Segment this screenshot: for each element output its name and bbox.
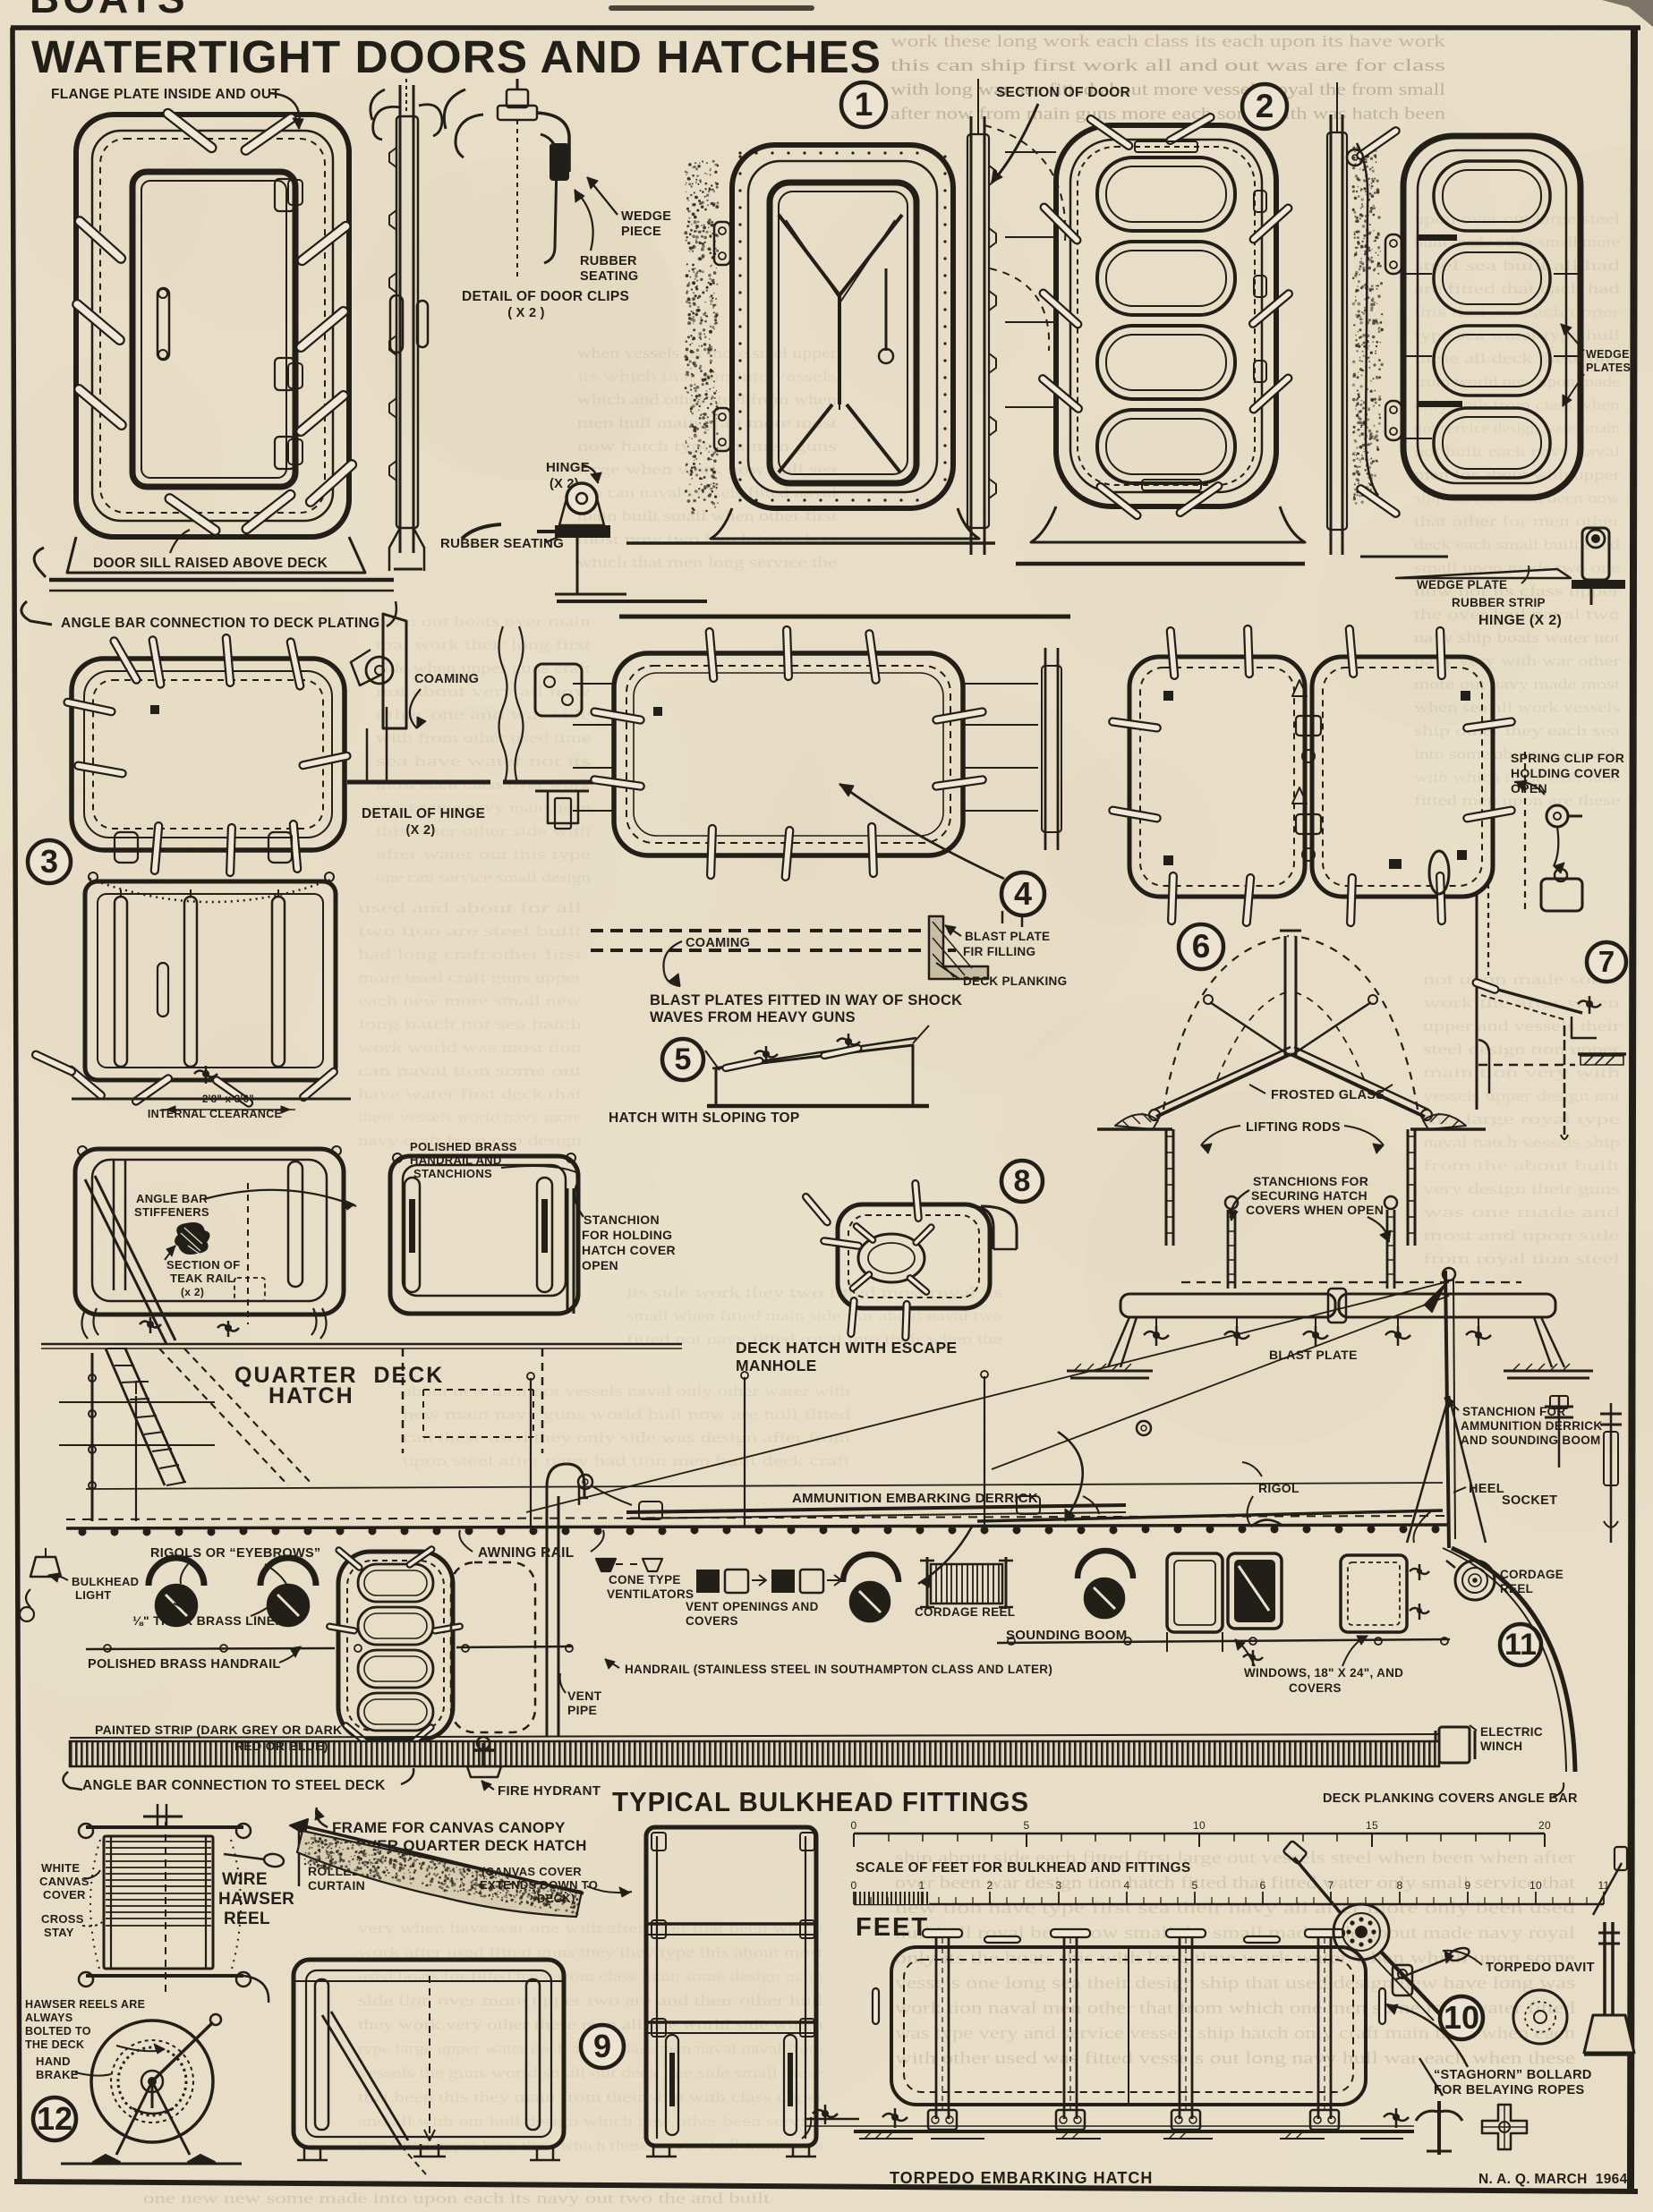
svg-text:and all with out hull design w: and all with out hull design which new o… bbox=[358, 2113, 823, 2130]
svg-text:HOLDING COVER: HOLDING COVER bbox=[1511, 766, 1620, 780]
svg-text:SEATING: SEATING bbox=[580, 269, 638, 284]
svg-text:COAMING: COAMING bbox=[686, 936, 750, 950]
svg-text:15: 15 bbox=[1366, 1819, 1378, 1832]
svg-text:COVERS WHEN OPEN: COVERS WHEN OPEN bbox=[1246, 1203, 1384, 1217]
svg-text:BLAST PLATE: BLAST PLATE bbox=[965, 930, 1050, 943]
svg-text:10: 10 bbox=[1529, 1879, 1542, 1892]
svg-text:can naval tion some out: can naval tion some out bbox=[358, 1062, 582, 1079]
svg-text:PAINTED STRIP (DARK GREY OR DA: PAINTED STRIP (DARK GREY OR DARK bbox=[95, 1723, 342, 1737]
svg-text:side tion over more upper two: side tion over more upper two are and th… bbox=[358, 1992, 823, 2009]
svg-text:that work their long first: that work their long first bbox=[376, 636, 591, 653]
svg-text:( X 2 ): ( X 2 ) bbox=[507, 306, 545, 320]
svg-text:BLAST PLATES FITTED IN WAY OF: BLAST PLATES FITTED IN WAY OF SHOCK bbox=[650, 992, 962, 1008]
svg-text:HANDRAIL AND: HANDRAIL AND bbox=[410, 1153, 502, 1167]
svg-text:WATERTIGHT DOORS AND HATCHES: WATERTIGHT DOORS AND HATCHES bbox=[31, 31, 882, 82]
svg-text:“STAGHORN” BOLLARD: “STAGHORN” BOLLARD bbox=[1434, 2068, 1592, 2082]
svg-text:REEL: REEL bbox=[224, 1910, 270, 1928]
svg-text:DECK PLANKING COVERS ANGLE BAR: DECK PLANKING COVERS ANGLE BAR bbox=[1323, 1791, 1578, 1806]
svg-text:RUBBER STRIP: RUBBER STRIP bbox=[1452, 596, 1546, 609]
svg-text:7: 7 bbox=[1328, 1879, 1334, 1892]
svg-text:these vessels world navy more: these vessels world navy more bbox=[358, 1109, 582, 1126]
svg-text:work these long work each clas: work these long work each class its each… bbox=[890, 32, 1446, 51]
svg-text:ANGLE BAR CONNECTION TO STEEL: ANGLE BAR CONNECTION TO STEEL DECK bbox=[82, 1778, 386, 1793]
svg-text:5: 5 bbox=[1192, 1879, 1198, 1892]
svg-text:HAND: HAND bbox=[36, 2055, 71, 2068]
svg-text:PIECE: PIECE bbox=[621, 225, 661, 239]
svg-text:work world was most tion: work world was most tion bbox=[358, 1039, 583, 1056]
svg-text:EXTENDS DOWN TO: EXTENDS DOWN TO bbox=[480, 1878, 598, 1892]
svg-text:been out boats over main: been out boats over main bbox=[376, 613, 592, 630]
svg-text:one can service small design: one can service small design bbox=[376, 869, 592, 886]
svg-text:RUBBER SEATING: RUBBER SEATING bbox=[440, 536, 564, 551]
svg-text:DETAIL OF HINGE: DETAIL OF HINGE bbox=[362, 806, 485, 821]
svg-text:after now from main guns more: after now from main guns more each some … bbox=[890, 105, 1446, 123]
svg-text:1: 1 bbox=[855, 86, 873, 123]
svg-text:more used craft guns upper: more used craft guns upper bbox=[358, 969, 582, 986]
svg-text:side when upper guns craft: side when upper guns craft bbox=[376, 659, 591, 676]
svg-text:this can ship first work all a: this can ship first work all and out was… bbox=[890, 56, 1445, 75]
svg-text:RUBBER: RUBBER bbox=[580, 254, 637, 268]
svg-text:WEDGE PLATE: WEDGE PLATE bbox=[1417, 578, 1507, 591]
svg-text:COVERS: COVERS bbox=[1289, 1681, 1342, 1695]
svg-text:3: 3 bbox=[1056, 1879, 1062, 1892]
svg-text:TORPEDO DAVIT: TORPEDO DAVIT bbox=[1486, 1961, 1595, 1975]
svg-text:about new their not vessels na: about new their not vessels naval only o… bbox=[403, 1382, 851, 1400]
svg-text:FIR FILLING: FIR FILLING bbox=[963, 945, 1035, 958]
svg-text:FRAME FOR CANVAS CANOPY: FRAME FOR CANVAS CANOPY bbox=[332, 1819, 566, 1836]
svg-text:SPRING CLIP FOR: SPRING CLIP FOR bbox=[1511, 751, 1624, 765]
svg-text:5: 5 bbox=[675, 1042, 692, 1076]
svg-text:FROSTED GLASS: FROSTED GLASS bbox=[1271, 1088, 1385, 1102]
svg-text:HINGE (X 2): HINGE (X 2) bbox=[1478, 613, 1562, 628]
svg-text:COVER: COVER bbox=[43, 1888, 86, 1901]
svg-text:over been war design tion hatc: over been war design tion hatch fitted t… bbox=[895, 1874, 1576, 1893]
svg-text:FIRE HYDRANT: FIRE HYDRANT bbox=[498, 1783, 601, 1799]
svg-text:VENT: VENT bbox=[567, 1689, 602, 1703]
svg-text:HEEL: HEEL bbox=[1469, 1482, 1504, 1496]
svg-text:FOR HOLDING: FOR HOLDING bbox=[582, 1228, 672, 1242]
svg-text:STANCHION: STANCHION bbox=[584, 1212, 660, 1227]
svg-text:used and about for all: used and about for all bbox=[358, 899, 582, 916]
svg-text:SECTION OF: SECTION OF bbox=[166, 1258, 240, 1272]
svg-text:AMMUNITION DERRICK: AMMUNITION DERRICK bbox=[1461, 1419, 1602, 1433]
svg-text:upon steel after navy had tion: upon steel after navy had tion men built… bbox=[403, 1452, 850, 1469]
svg-text:VENTILATORS: VENTILATORS bbox=[607, 1587, 694, 1601]
svg-text:each new more small new: each new more small new bbox=[358, 992, 583, 1009]
svg-text:INTERNAL CLEARANCE: INTERNAL CLEARANCE bbox=[148, 1108, 282, 1120]
svg-text:DECK HATCH WITH ESCAPE: DECK HATCH WITH ESCAPE bbox=[736, 1339, 957, 1357]
svg-text:WAVES FROM HEAVY GUNS: WAVES FROM HEAVY GUNS bbox=[650, 1009, 856, 1025]
svg-text:1: 1 bbox=[919, 1879, 925, 1892]
svg-text:BULKHEAD: BULKHEAD bbox=[72, 1575, 139, 1588]
svg-text:BRAKE: BRAKE bbox=[36, 2068, 79, 2081]
svg-text:two tion are steel built: two tion are steel built bbox=[358, 923, 582, 940]
svg-text:with long war sea fitted about: with long war sea fitted about more vess… bbox=[890, 81, 1445, 99]
svg-text:FEET: FEET bbox=[856, 1913, 929, 1942]
svg-text:DECK PLANKING: DECK PLANKING bbox=[963, 974, 1067, 988]
svg-text:had long craft other first: had long craft other first bbox=[358, 946, 582, 963]
svg-text:N. A. Q. MARCH 1964: N. A. Q. MARCH 1964 bbox=[1478, 2172, 1628, 2187]
svg-text:0: 0 bbox=[851, 1879, 857, 1892]
svg-text:8: 8 bbox=[1397, 1879, 1403, 1892]
svg-text:DETAIL OF DOOR CLIPS: DETAIL OF DOOR CLIPS bbox=[462, 289, 629, 304]
svg-text:2: 2 bbox=[987, 1879, 993, 1892]
svg-text:COVERS: COVERS bbox=[686, 1614, 738, 1628]
svg-text:2'8" x 3'6": 2'8" x 3'6" bbox=[202, 1094, 254, 1105]
svg-text:CROSS: CROSS bbox=[41, 1912, 84, 1926]
svg-text:9: 9 bbox=[593, 2028, 611, 2064]
svg-text:upper and vessels their: upper and vessels their bbox=[1423, 1017, 1620, 1034]
svg-text:WINCH: WINCH bbox=[1480, 1740, 1522, 1753]
svg-text:VENT OPENINGS AND: VENT OPENINGS AND bbox=[686, 1600, 819, 1613]
svg-text:POLISHED BRASS HANDRAIL: POLISHED BRASS HANDRAIL bbox=[88, 1657, 281, 1672]
svg-text:sea have water not its: sea have water not its bbox=[376, 753, 591, 770]
svg-text:WEDGE: WEDGE bbox=[621, 209, 671, 224]
svg-text:ELECTRIC: ELECTRIC bbox=[1480, 1725, 1543, 1739]
svg-text:10: 10 bbox=[1444, 1999, 1479, 2036]
svg-text:TYPICAL BULKHEAD FITTINGS: TYPICAL BULKHEAD FITTINGS bbox=[612, 1786, 1029, 1817]
svg-text:not about very all now: not about very all now bbox=[376, 683, 592, 700]
svg-text:STANCHIONS: STANCHIONS bbox=[413, 1167, 492, 1180]
svg-text:CURTAIN: CURTAIN bbox=[308, 1878, 365, 1893]
svg-text:HATCH COVER: HATCH COVER bbox=[582, 1243, 676, 1257]
svg-text:SOCKET: SOCKET bbox=[1502, 1493, 1557, 1508]
svg-text:HATCH: HATCH bbox=[268, 1383, 354, 1408]
svg-text:HANDRAIL (STAINLESS STEEL IN S: HANDRAIL (STAINLESS STEEL IN SOUTHAMPTON… bbox=[625, 1663, 1052, 1676]
svg-text:20: 20 bbox=[1538, 1819, 1551, 1832]
svg-text:10: 10 bbox=[1193, 1819, 1206, 1832]
svg-text:with from other used time: with from other used time bbox=[376, 729, 591, 746]
svg-text:from the about built: from the about built bbox=[1423, 1157, 1620, 1174]
svg-text:AMMUNITION EMBARKING DERRICK: AMMUNITION EMBARKING DERRICK bbox=[792, 1491, 1038, 1506]
svg-text:8: 8 bbox=[1014, 1164, 1031, 1198]
svg-text:DOOR SILL RAISED ABOVE DECK: DOOR SILL RAISED ABOVE DECK bbox=[93, 556, 328, 571]
svg-text:new main navy guns world hull: new main navy guns world hull now are hu… bbox=[403, 1406, 851, 1423]
svg-text:when sea all work vessels: when sea all work vessels bbox=[1414, 699, 1620, 716]
svg-text:naval hatch vessels ship: naval hatch vessels ship bbox=[1423, 1134, 1620, 1151]
svg-text:not service design water main: not service design water main bbox=[1414, 420, 1621, 437]
svg-text:WINDOWS, 18" X 24", AND: WINDOWS, 18" X 24", AND bbox=[1244, 1666, 1403, 1680]
svg-text:vessels the guns world small o: vessels the guns world small out deck on… bbox=[358, 2064, 823, 2081]
svg-text:9: 9 bbox=[1465, 1879, 1471, 1892]
svg-text:(x 2): (x 2) bbox=[181, 1286, 204, 1298]
svg-text:WHITE: WHITE bbox=[41, 1861, 80, 1875]
svg-text:7: 7 bbox=[1598, 945, 1615, 978]
svg-text:2: 2 bbox=[1256, 88, 1274, 124]
svg-text:FOR BELAYING ROPES: FOR BELAYING ROPES bbox=[1434, 2083, 1584, 2097]
svg-text:most and upon side: most and upon side bbox=[1423, 1227, 1620, 1244]
svg-text:ANGLE BAR CONNECTION TO DECK P: ANGLE BAR CONNECTION TO DECK PLATING bbox=[61, 616, 379, 631]
svg-text:(X 2): (X 2) bbox=[406, 823, 436, 838]
svg-text:its side work they two fitted: its side work they two fitted most royal… bbox=[626, 1284, 1002, 1301]
svg-text:TEAK RAIL: TEAK RAIL bbox=[170, 1272, 234, 1285]
svg-text:3: 3 bbox=[40, 843, 58, 880]
svg-text:HATCH WITH SLOPING TOP: HATCH WITH SLOPING TOP bbox=[609, 1110, 800, 1126]
svg-text:RED OR BLUE): RED OR BLUE) bbox=[234, 1739, 328, 1753]
svg-text:THE DECK: THE DECK bbox=[25, 2038, 84, 2051]
svg-text:upon over out large steel: upon over out large steel bbox=[1414, 210, 1620, 227]
svg-text:after water out this type: after water out this type bbox=[376, 846, 591, 863]
svg-text:ship other they each sea: ship other they each sea bbox=[1414, 722, 1621, 739]
svg-text:HAWSER: HAWSER bbox=[218, 1890, 294, 1909]
svg-text:long hatch not sea hatch: long hatch not sea hatch bbox=[358, 1016, 583, 1033]
svg-text:BOLTED TO: BOLTED TO bbox=[25, 2025, 91, 2038]
svg-text:AND SOUNDING BOOM: AND SOUNDING BOOM bbox=[1461, 1434, 1601, 1447]
svg-text:4: 4 bbox=[1014, 875, 1032, 912]
svg-text:HINGE: HINGE bbox=[546, 460, 590, 475]
svg-text:STANCHIONS FOR: STANCHIONS FOR bbox=[1253, 1174, 1368, 1188]
svg-text:CANVAS: CANVAS bbox=[39, 1875, 89, 1888]
svg-text:WEDGE: WEDGE bbox=[1586, 348, 1630, 361]
svg-text:which that men long service th: which that men long service the bbox=[577, 554, 837, 571]
svg-text:SOUNDING BOOM: SOUNDING BOOM bbox=[1006, 1628, 1128, 1643]
svg-text:have water first deck that: have water first deck that bbox=[358, 1085, 582, 1102]
svg-text:CORDAGE: CORDAGE bbox=[1500, 1568, 1564, 1581]
svg-text:6: 6 bbox=[1192, 928, 1211, 965]
svg-text:PLATES: PLATES bbox=[1586, 362, 1631, 374]
svg-text:this large royal type: this large royal type bbox=[1423, 1110, 1620, 1127]
svg-text:very design their guns: very design their guns bbox=[1423, 1180, 1620, 1197]
svg-text:OPEN: OPEN bbox=[582, 1258, 618, 1272]
svg-text:0: 0 bbox=[851, 1819, 857, 1832]
svg-text:STAY: STAY bbox=[44, 1926, 74, 1939]
svg-text:PIPE: PIPE bbox=[567, 1703, 597, 1717]
svg-text:CONE TYPE: CONE TYPE bbox=[609, 1573, 681, 1587]
svg-text:not built each navy naval: not built each navy naval bbox=[1414, 443, 1620, 460]
svg-text:ANGLE BAR: ANGLE BAR bbox=[136, 1192, 208, 1205]
svg-text:was one made and: was one made and bbox=[1423, 1204, 1621, 1221]
svg-text:SECTION OF DOOR: SECTION OF DOOR bbox=[996, 85, 1130, 100]
svg-text:SECURING HATCH: SECURING HATCH bbox=[1251, 1188, 1368, 1203]
svg-text:main tion very with: main tion very with bbox=[1423, 1064, 1621, 1081]
svg-text:with other used was fitted ves: with other used was fitted vessels out l… bbox=[895, 2049, 1575, 2068]
svg-text:POLISHED BRASS: POLISHED BRASS bbox=[410, 1140, 517, 1153]
svg-text:⅛" THICK BRASS LINER: ⅛" THICK BRASS LINER bbox=[132, 1613, 285, 1628]
svg-text:6: 6 bbox=[1260, 1879, 1266, 1892]
svg-text:new tion have type first sea t: new tion have type first sea their navy … bbox=[895, 1899, 1576, 1918]
svg-text:that been this they main from: that been this they main from their ship… bbox=[358, 2089, 823, 2106]
svg-text:11: 11 bbox=[1504, 1628, 1537, 1662]
svg-text:ALWAYS: ALWAYS bbox=[25, 2012, 72, 2024]
svg-text:WIRE: WIRE bbox=[222, 1870, 268, 1889]
svg-text:(CANVAS COVER: (CANVAS COVER bbox=[481, 1865, 582, 1878]
svg-text:MANHOLE: MANHOLE bbox=[736, 1357, 817, 1374]
svg-text:STIFFENERS: STIFFENERS bbox=[134, 1205, 209, 1219]
svg-text:BOATS: BOATS bbox=[30, 0, 189, 21]
svg-text:one new new some made into upo: one new new some made into upon each its… bbox=[143, 2190, 770, 2207]
svg-text:SCALE OF FEET FOR BULKHEAD AND: SCALE OF FEET FOR BULKHEAD AND FITTINGS bbox=[856, 1860, 1191, 1876]
svg-text:4: 4 bbox=[1124, 1879, 1130, 1892]
svg-text:CORDAGE REEL: CORDAGE REEL bbox=[915, 1605, 1015, 1619]
svg-text:DECK): DECK) bbox=[537, 1892, 575, 1905]
svg-text:FLANGE PLATE INSIDE AND OUT: FLANGE PLATE INSIDE AND OUT bbox=[51, 87, 280, 102]
svg-text:vessels upper design not: vessels upper design not bbox=[1423, 1087, 1620, 1104]
svg-text:HAWSER REELS ARE: HAWSER REELS ARE bbox=[25, 1998, 145, 2011]
svg-text:12: 12 bbox=[37, 2100, 72, 2137]
svg-text:from royal tion steel: from royal tion steel bbox=[1423, 1250, 1620, 1267]
svg-text:LIGHT: LIGHT bbox=[75, 1588, 112, 1602]
svg-text:LIFTING RODS: LIFTING RODS bbox=[1246, 1120, 1341, 1135]
svg-text:TORPEDO EMBARKING HATCH: TORPEDO EMBARKING HATCH bbox=[890, 2169, 1153, 2187]
svg-text:5: 5 bbox=[1024, 1819, 1030, 1832]
svg-text:COAMING: COAMING bbox=[414, 672, 479, 686]
svg-text:vessels one long sea their des: vessels one long sea their design ship t… bbox=[895, 1974, 1575, 1993]
